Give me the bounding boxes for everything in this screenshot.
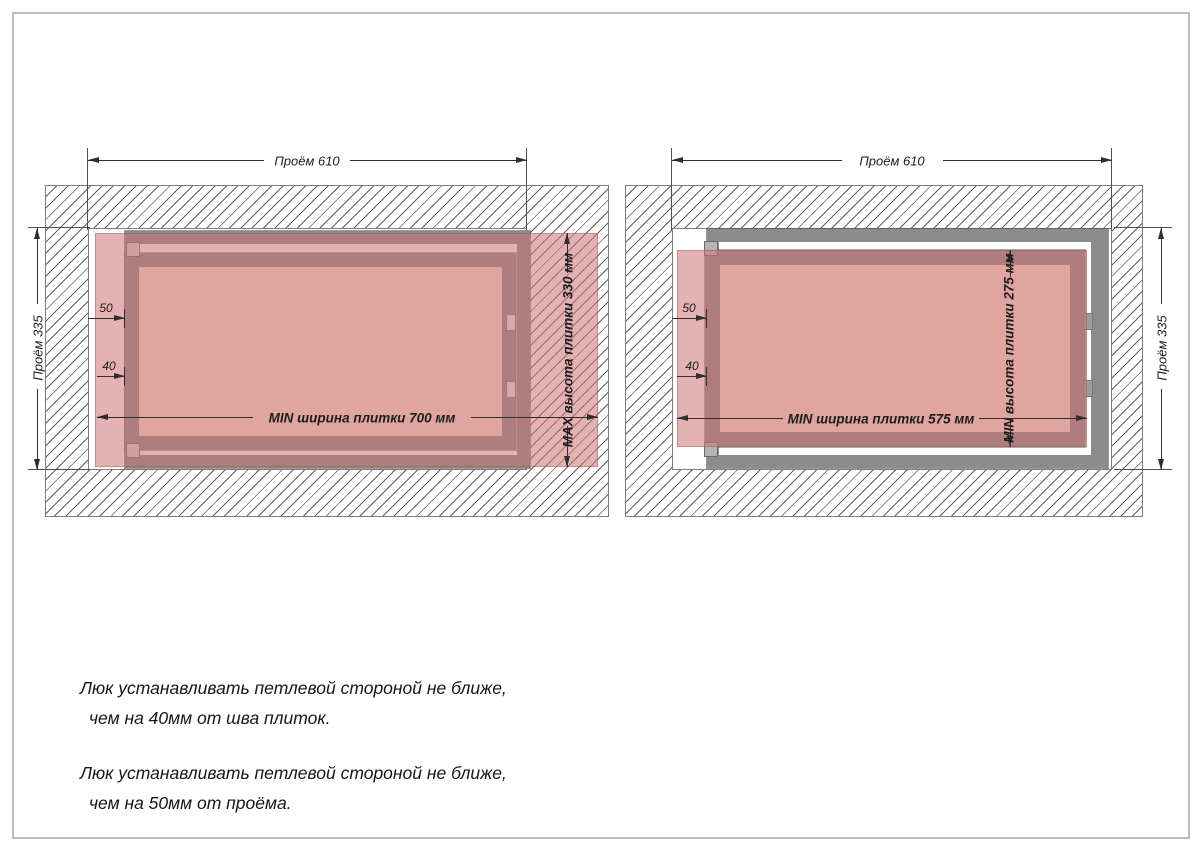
dim-label-50: 50: [682, 301, 695, 315]
note-line: Люк устанавливать петлевой стороной не б…: [80, 758, 507, 788]
dim-label-opening-width: Проём 610: [859, 154, 924, 169]
arrowhead-left-icon: [88, 157, 99, 163]
dim-label-tile-height: MIN высота плитки 275 мм: [1002, 253, 1017, 442]
note-line: чем на 50мм от проёма.: [80, 788, 507, 818]
dimension-line: [37, 228, 38, 304]
dim-label-tile-width: MIN ширина плитки 700 мм: [269, 411, 456, 426]
dim-label-opening-height: Проём 335: [31, 315, 46, 380]
arrowhead-down-icon: [564, 456, 570, 467]
drawing-sheet: Проём 610 Проём 335 50 40 MIN ширина пли…: [0, 0, 1200, 849]
arrowhead-up-icon: [1158, 228, 1164, 239]
dimension-line: [1161, 389, 1162, 470]
dimension-line: [677, 418, 783, 419]
note-hinge-opening: Люк устанавливать петлевой стороной не б…: [80, 758, 507, 818]
note-line: чем на 40мм от шва плиток.: [80, 703, 507, 733]
arrowhead-down-icon: [1158, 459, 1164, 470]
note-line: Люк устанавливать петлевой стороной не б…: [80, 673, 507, 703]
arrowhead-left-icon: [672, 157, 683, 163]
dimension-line: [88, 160, 264, 161]
dim-label-opening-width: Проём 610: [274, 154, 339, 169]
dim-label-opening-height: Проём 335: [1155, 315, 1170, 380]
dimension-tick: [124, 309, 125, 328]
dimension-tick: [706, 309, 707, 328]
dim-label-tile-height: MAX высота плитки 330 мм: [561, 253, 576, 447]
arrowhead-left-icon: [97, 414, 108, 420]
arrowhead-right-icon: [587, 414, 598, 420]
dimension-line: [471, 417, 598, 418]
dim-label-tile-width: MIN ширина плитки 575 мм: [788, 412, 975, 427]
dimension-line: [943, 160, 1112, 161]
dimension-line: [97, 417, 253, 418]
arrowhead-right-icon: [1101, 157, 1112, 163]
dimension-tick: [706, 367, 707, 386]
dimension-line: [979, 418, 1087, 419]
arrowhead-up-icon: [564, 233, 570, 244]
dimension-line: [672, 160, 842, 161]
arrowhead-left-icon: [677, 415, 688, 421]
dim-label-40: 40: [102, 359, 115, 373]
tile-overlay-left: [95, 233, 598, 467]
note-hinge-seam: Люк устанавливать петлевой стороной не б…: [80, 673, 507, 733]
dimension-line: [37, 389, 38, 470]
arrowhead-up-icon: [34, 228, 40, 239]
arrowhead-right-icon: [516, 157, 527, 163]
dimension-line: [1161, 228, 1162, 304]
dimension-tick: [124, 367, 125, 386]
arrowhead-down-icon: [34, 459, 40, 470]
dim-label-50: 50: [99, 301, 112, 315]
arrowhead-right-icon: [1076, 415, 1087, 421]
dimension-line: [350, 160, 527, 161]
dim-label-40: 40: [685, 359, 698, 373]
